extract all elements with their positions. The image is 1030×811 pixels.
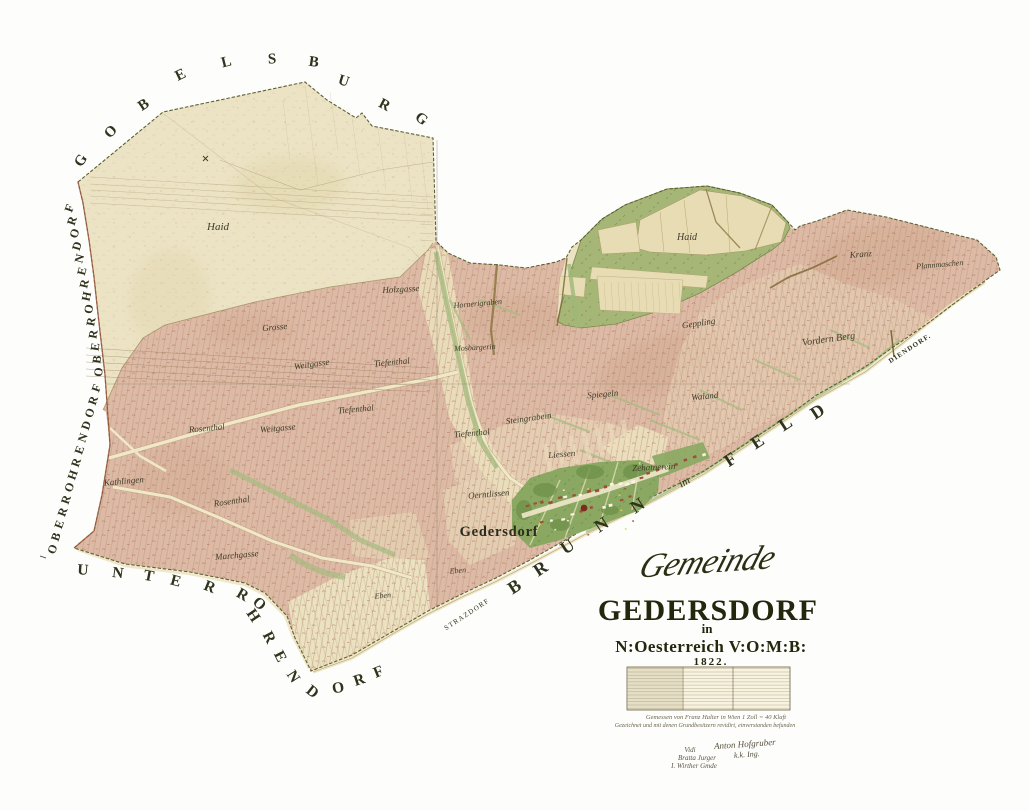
svg-text:Bratta Jurger: Bratta Jurger bbox=[678, 754, 716, 762]
svg-text:E: E bbox=[74, 265, 90, 276]
svg-text:D: D bbox=[69, 239, 85, 252]
svg-text:L: L bbox=[220, 53, 234, 71]
svg-text:R: R bbox=[529, 556, 552, 580]
svg-text:N: N bbox=[71, 252, 87, 264]
svg-text:U: U bbox=[77, 561, 89, 579]
svg-text:Anton Hofgruber: Anton Hofgruber bbox=[713, 737, 777, 751]
svg-text:in: in bbox=[702, 621, 714, 636]
svg-text:G: G bbox=[412, 109, 431, 129]
svg-text:E: E bbox=[173, 66, 189, 85]
svg-text:O: O bbox=[66, 227, 82, 240]
svg-text:F: F bbox=[88, 382, 104, 394]
svg-text:N:Oesterreich V:O:M:B:: N:Oesterreich V:O:M:B: bbox=[615, 637, 807, 656]
svg-text:E: E bbox=[87, 342, 102, 352]
svg-text:N: N bbox=[283, 667, 303, 686]
svg-text:R: R bbox=[201, 577, 218, 597]
svg-text:O: O bbox=[331, 679, 346, 698]
svg-text:R: R bbox=[54, 505, 70, 518]
svg-text:G: G bbox=[71, 151, 91, 170]
svg-text:O: O bbox=[61, 480, 77, 494]
svg-text:R: R bbox=[76, 278, 92, 290]
svg-text:O: O bbox=[44, 542, 60, 556]
svg-text:N: N bbox=[111, 564, 124, 582]
svg-text:S: S bbox=[267, 51, 276, 67]
svg-text:E: E bbox=[270, 648, 290, 665]
svg-text:F: F bbox=[61, 202, 77, 214]
svg-text:R: R bbox=[376, 96, 393, 115]
svg-text:Gezeichnet und mit denen Grund: Gezeichnet und mit denen Grundbesitzern … bbox=[615, 722, 795, 729]
svg-text:E: E bbox=[51, 518, 67, 530]
svg-text:R: R bbox=[58, 493, 74, 506]
svg-text:H: H bbox=[79, 290, 95, 303]
svg-text:H: H bbox=[64, 467, 81, 481]
svg-text:B: B bbox=[504, 575, 525, 598]
svg-text:Holzgasse: Holzgasse bbox=[381, 283, 419, 295]
svg-text:I. Wirther Gmde: I. Wirther Gmde bbox=[670, 762, 717, 770]
svg-text:O: O bbox=[81, 406, 97, 420]
svg-text:O: O bbox=[81, 303, 97, 315]
svg-text:D: D bbox=[78, 418, 94, 431]
svg-text:B: B bbox=[308, 54, 320, 71]
svg-text:T: T bbox=[142, 567, 156, 586]
svg-text:1822.: 1822. bbox=[694, 656, 729, 668]
svg-text:R: R bbox=[83, 316, 98, 327]
svg-text:k.k. Ing.: k.k. Ing. bbox=[734, 749, 760, 760]
svg-text:R: R bbox=[85, 394, 101, 407]
svg-text:D: D bbox=[303, 682, 322, 702]
svg-text:F: F bbox=[371, 662, 386, 681]
svg-text:R: R bbox=[68, 456, 84, 469]
svg-text:Kranz: Kranz bbox=[848, 248, 872, 260]
svg-text:B: B bbox=[135, 96, 152, 115]
svg-text:Haid: Haid bbox=[676, 232, 698, 243]
svg-text:Haid: Haid bbox=[206, 221, 230, 233]
svg-text:B: B bbox=[48, 531, 64, 543]
svg-text:Eben: Eben bbox=[373, 590, 391, 600]
svg-text:O: O bbox=[91, 367, 106, 378]
svg-text:R: R bbox=[351, 670, 368, 690]
svg-text:B: B bbox=[89, 355, 104, 365]
svg-text:E: E bbox=[169, 571, 183, 590]
svg-text:Gemessen von Franz Halter in W: Gemessen von Franz Halter in Wien 1 Zoll… bbox=[646, 714, 786, 721]
svg-text:U: U bbox=[336, 72, 351, 91]
svg-text:Vidi: Vidi bbox=[684, 746, 695, 754]
svg-text:E: E bbox=[71, 444, 87, 456]
svg-text:N: N bbox=[75, 431, 91, 444]
svg-text:R: R bbox=[85, 328, 100, 339]
svg-text:Gedersdorf: Gedersdorf bbox=[460, 524, 539, 540]
svg-text:R: R bbox=[64, 214, 80, 227]
svg-text:Gemeinde: Gemeinde bbox=[635, 537, 781, 586]
svg-text:R: R bbox=[259, 629, 280, 648]
svg-text:O: O bbox=[101, 122, 121, 142]
svg-text:Eben: Eben bbox=[448, 565, 466, 575]
